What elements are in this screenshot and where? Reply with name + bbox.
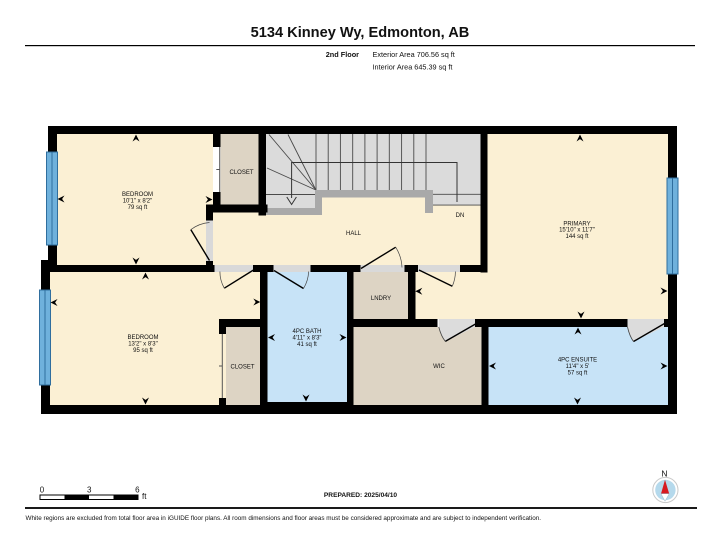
svg-text:4PC ENSUITE: 4PC ENSUITE bbox=[558, 357, 597, 363]
svg-text:HALL: HALL bbox=[346, 231, 362, 237]
svg-text:Interior Area 645.39 sq ft: Interior Area 645.39 sq ft bbox=[373, 63, 453, 72]
svg-text:0: 0 bbox=[40, 486, 45, 495]
svg-text:11'4" x 5': 11'4" x 5' bbox=[566, 364, 590, 370]
svg-text:79 sq ft: 79 sq ft bbox=[128, 205, 148, 211]
svg-text:BEDROOM: BEDROOM bbox=[127, 335, 158, 341]
svg-text:LNDRY: LNDRY bbox=[371, 296, 391, 302]
svg-text:144 sq ft: 144 sq ft bbox=[565, 234, 588, 240]
svg-text:4PC BATH: 4PC BATH bbox=[293, 329, 322, 335]
svg-text:CLOSET: CLOSET bbox=[230, 364, 254, 370]
svg-text:PREPARED: 2025/04/10: PREPARED: 2025/04/10 bbox=[324, 492, 398, 499]
svg-text:57 sq ft: 57 sq ft bbox=[568, 371, 588, 377]
svg-text:2nd Floor: 2nd Floor bbox=[326, 50, 359, 59]
svg-text:41 sq ft: 41 sq ft bbox=[297, 342, 317, 348]
svg-text:15'10" x 11'7": 15'10" x 11'7" bbox=[559, 228, 595, 234]
svg-text:CLOSET: CLOSET bbox=[229, 170, 253, 176]
svg-text:4'11" x 8'3": 4'11" x 8'3" bbox=[292, 336, 321, 342]
svg-text:BEDROOM: BEDROOM bbox=[122, 192, 153, 198]
svg-text:5134 Kinney Wy, Edmonton, AB: 5134 Kinney Wy, Edmonton, AB bbox=[251, 25, 470, 41]
svg-text:13'2" x 8'3": 13'2" x 8'3" bbox=[128, 342, 158, 348]
svg-text:WIC: WIC bbox=[433, 364, 445, 370]
svg-text:White regions are excluded fro: White regions are excluded from total fl… bbox=[26, 515, 542, 522]
svg-text:ft: ft bbox=[142, 492, 147, 501]
svg-text:6: 6 bbox=[135, 486, 140, 495]
svg-text:DN: DN bbox=[456, 213, 465, 219]
svg-text:3: 3 bbox=[87, 486, 92, 495]
svg-text:95 sq ft: 95 sq ft bbox=[133, 348, 153, 354]
svg-text:10'1" x 8'2": 10'1" x 8'2" bbox=[123, 199, 153, 205]
svg-text:PRIMARY: PRIMARY bbox=[563, 221, 590, 227]
svg-text:Exterior Area 706.56 sq ft: Exterior Area 706.56 sq ft bbox=[373, 50, 455, 59]
